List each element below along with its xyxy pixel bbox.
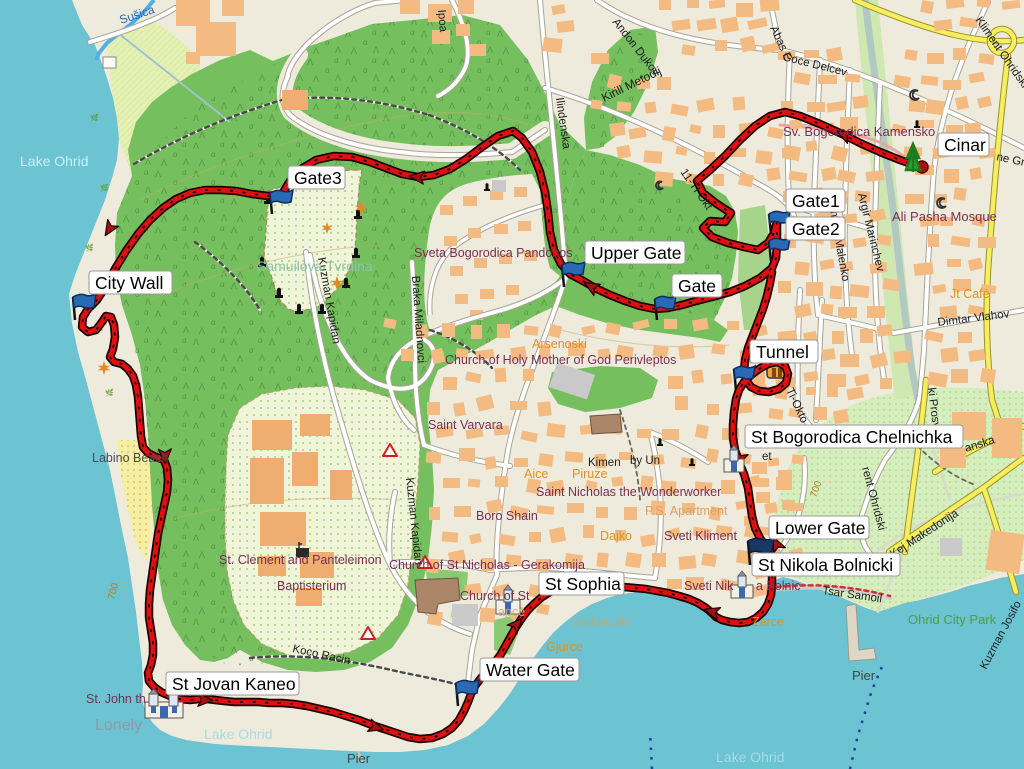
svg-text:Boro Shain: Boro Shain (476, 509, 538, 523)
svg-text:Arsenoski: Arsenoski (532, 337, 587, 351)
svg-text:Church of Holy Mother of God P: Church of Holy Mother of God Perivleptos (445, 353, 676, 367)
svg-text:Pier: Pier (347, 751, 371, 766)
svg-text:Gate2: Gate2 (792, 219, 840, 239)
svg-text:Sv. Bogorodica Kamensko: Sv. Bogorodica Kamensko (783, 124, 935, 139)
svg-text:Water Gate: Water Gate (486, 660, 575, 680)
svg-text:🌿: 🌿 (105, 388, 114, 397)
svg-text:Sveti Nik: Sveti Nik (684, 579, 734, 593)
svg-text:St. Clement and Panteleimon: St. Clement and Panteleimon (219, 553, 382, 567)
svg-text:Lower Gate: Lower Gate (775, 518, 865, 538)
svg-text:Dajko: Dajko (600, 529, 632, 543)
svg-text:🌿: 🌿 (90, 113, 99, 122)
svg-text:Jt Café: Jt Café (950, 287, 990, 301)
svg-text:Lake Ohrid: Lake Ohrid (716, 749, 784, 765)
svg-text:apce: apce (498, 605, 525, 619)
svg-text:Ohrid City Park: Ohrid City Park (908, 612, 997, 627)
svg-text:🌿: 🌿 (100, 183, 109, 192)
svg-text:a Bolnic: a Bolnic (756, 579, 800, 593)
svg-text:Church of St: Church of St (460, 589, 530, 603)
svg-text:St Nikola Bolnicki: St Nikola Bolnicki (758, 555, 893, 575)
svg-text:Pier: Pier (852, 668, 876, 683)
svg-text:St Bogorodica Chelnichka: St Bogorodica Chelnichka (751, 427, 953, 447)
svg-text:Zarce: Zarce (752, 615, 784, 629)
svg-text:Gate3: Gate3 (294, 168, 342, 188)
svg-text:Ipoa: Ipoa (435, 9, 449, 33)
svg-text:P.S. Apartment: P.S. Apartment (645, 504, 728, 518)
svg-text:St. John th: St. John th (86, 692, 146, 706)
svg-text:Samuilova Tvrdina: Samuilova Tvrdina (257, 258, 373, 274)
svg-text:Sveta Bogorodica Pandonos: Sveta Bogorodica Pandonos (414, 246, 572, 260)
svg-text:Saint Varvara: Saint Varvara (428, 418, 503, 432)
svg-text:by Un: by Un (630, 455, 660, 467)
svg-text:Stefanoski: Stefanoski (572, 615, 630, 629)
svg-text:🌿: 🌿 (85, 243, 94, 252)
svg-text:Gate1: Gate1 (792, 191, 840, 211)
svg-text:St Sophia: St Sophia (545, 574, 621, 594)
svg-text:Labino Beach: Labino Beach (92, 451, 169, 465)
svg-text:City Wall: City Wall (95, 273, 163, 293)
svg-text:Lake Ohrid: Lake Ohrid (204, 726, 272, 742)
svg-text:Lonely: Lonely (95, 717, 142, 734)
svg-text:St Jovan Kaneo: St Jovan Kaneo (172, 674, 296, 694)
svg-text:Sveti Kliment: Sveti Kliment (664, 529, 737, 543)
svg-text:Ali Pasha Mosque: Ali Pasha Mosque (892, 209, 997, 224)
svg-text:Baptisterium: Baptisterium (277, 579, 346, 593)
svg-text:Piruze: Piruze (572, 467, 607, 481)
svg-text:Gate: Gate (678, 276, 716, 296)
svg-text:Aice: Aice (524, 467, 548, 481)
svg-text:Gjurce: Gjurce (546, 640, 583, 654)
svg-text:Upper Gate: Upper Gate (591, 243, 681, 263)
svg-text:Church of St Nicholas - Gerako: Church of St Nicholas - Gerakomija (389, 558, 585, 572)
svg-text:Lake Ohrid: Lake Ohrid (20, 153, 88, 169)
svg-text:Tunnel: Tunnel (756, 342, 809, 362)
svg-text:Cinar: Cinar (944, 135, 986, 155)
svg-text:Saint Nicholas the Wonderworke: Saint Nicholas the Wonderworker (536, 485, 721, 499)
svg-text:et: et (762, 451, 772, 463)
